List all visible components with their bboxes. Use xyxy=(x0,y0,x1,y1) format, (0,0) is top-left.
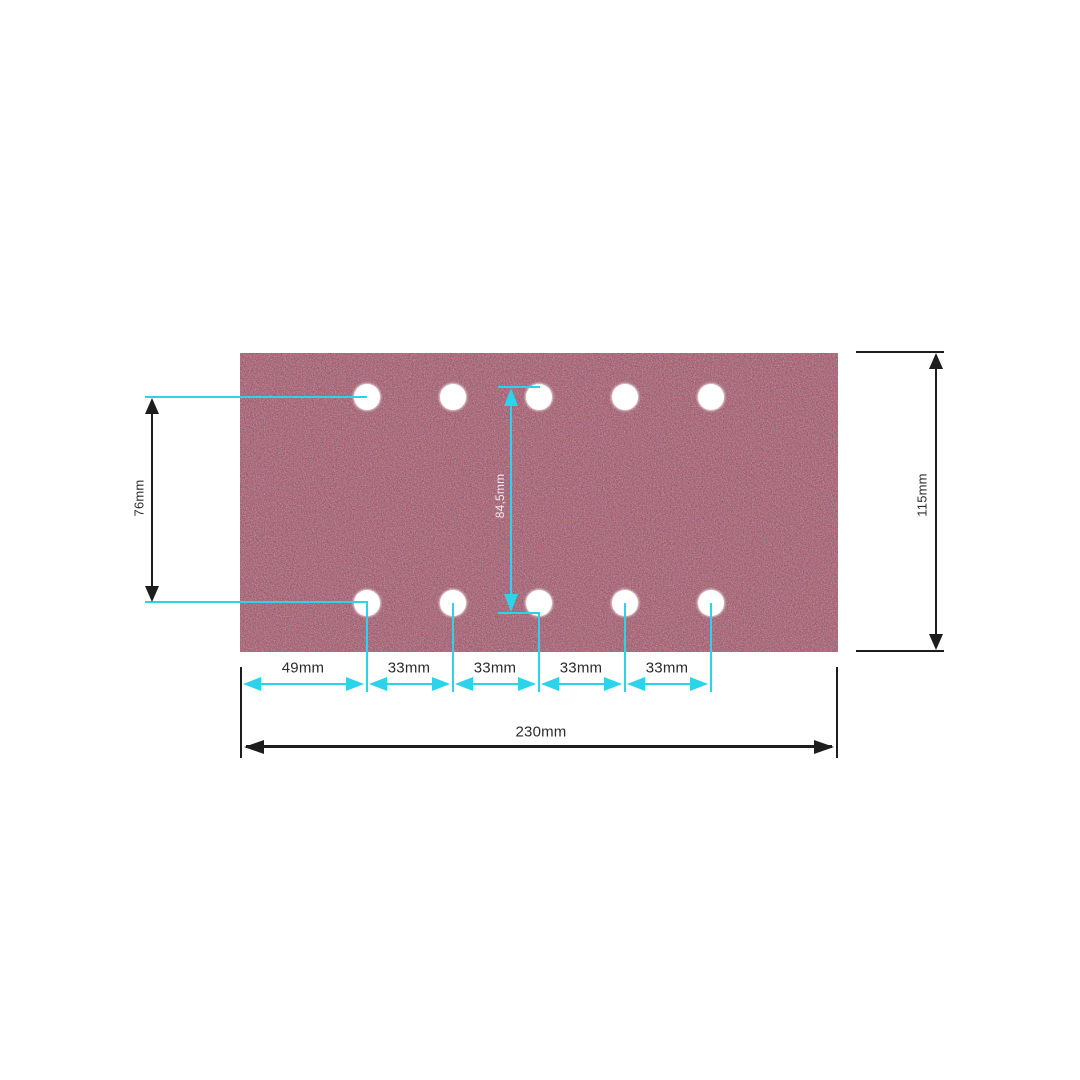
dim-33mm-label-1: 33mm xyxy=(388,660,430,677)
dim-84-5mm-tick-bottom xyxy=(498,612,540,614)
dim-33mm-label-4: 33mm xyxy=(646,660,688,677)
dim-33mm-arrow-4 xyxy=(627,677,708,691)
dimension-diagram: 76mm 84,5mm 49mm 33mm 33mm 33mm 33mm 230… xyxy=(0,0,1080,1080)
dim-115mm-arrow xyxy=(929,353,943,650)
hole-extension-line-5 xyxy=(710,603,712,692)
dim-230mm-tick-right xyxy=(836,667,838,758)
sanding-hole xyxy=(440,384,466,410)
hole-extension-line-2 xyxy=(452,603,454,692)
dim-230mm-tick-left xyxy=(240,667,242,758)
dim-33mm-arrow-3 xyxy=(541,677,622,691)
dim-115mm-tick-bottom xyxy=(856,650,944,652)
hole-extension-line-4 xyxy=(624,603,626,692)
dim-230mm-label: 230mm xyxy=(515,724,566,741)
dim-33mm-label-2: 33mm xyxy=(474,660,516,677)
dim-33mm-arrow-1 xyxy=(369,677,450,691)
hole-extension-line-3 xyxy=(538,612,540,692)
dim-49mm-arrow xyxy=(243,677,364,691)
hole-extension-line-1 xyxy=(366,601,368,692)
dim-76mm-extension-line-bottom xyxy=(145,601,367,603)
dim-76mm-label: 76mm xyxy=(132,480,147,517)
dim-33mm-arrow-2 xyxy=(455,677,536,691)
sanding-hole xyxy=(698,384,724,410)
dim-84-5mm-label: 84,5mm xyxy=(493,474,507,519)
dim-76mm-arrow xyxy=(145,398,159,602)
dim-76mm-extension-line-top xyxy=(145,396,367,398)
dim-49mm-label: 49mm xyxy=(282,660,324,677)
dim-33mm-label-3: 33mm xyxy=(560,660,602,677)
sanding-hole xyxy=(612,384,638,410)
dim-230mm-arrow xyxy=(244,740,834,754)
dim-115mm-label: 115mm xyxy=(915,473,930,516)
